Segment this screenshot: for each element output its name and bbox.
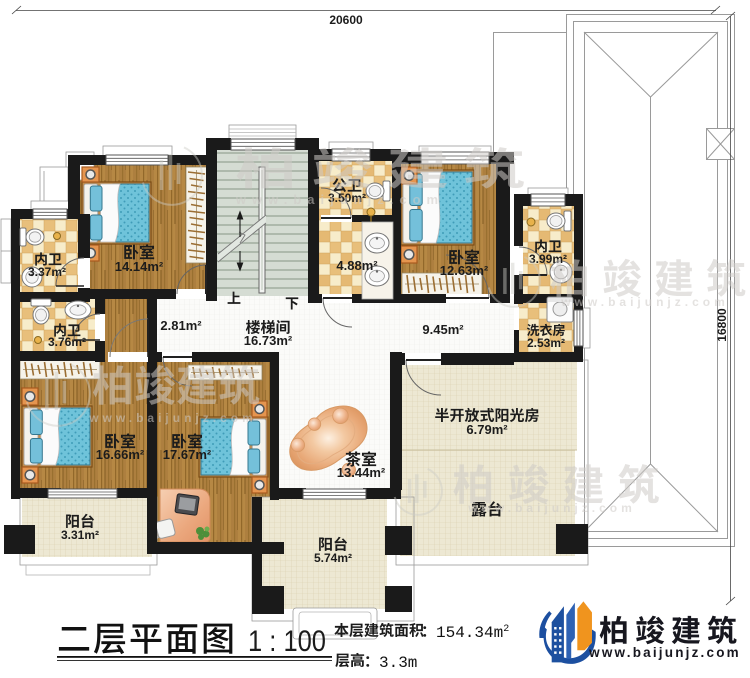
svg-text:www.baijunjz.com: www.baijunjz.com	[467, 501, 636, 515]
svg-text:12.63m²: 12.63m²	[440, 263, 489, 278]
svg-text:16.73m²: 16.73m²	[244, 333, 293, 348]
svg-text:5.74m²: 5.74m²	[314, 551, 352, 565]
svg-text:4.88m²: 4.88m²	[336, 258, 378, 273]
svg-text:：: ：	[421, 623, 436, 640]
svg-text:20600: 20600	[329, 13, 363, 27]
svg-text:2.81m²: 2.81m²	[160, 318, 202, 333]
svg-text:14.14m²: 14.14m²	[115, 259, 164, 274]
svg-text:9.45m²: 9.45m²	[422, 322, 464, 337]
svg-text:154.34m2: 154.34m2	[436, 624, 509, 642]
svg-text:www.baijunjz.com: www.baijunjz.com	[88, 411, 257, 425]
svg-text:2.53m²: 2.53m²	[527, 336, 565, 350]
svg-text:：: ：	[364, 653, 379, 670]
svg-text:www.baijunjz.com: www.baijunjz.com	[235, 192, 444, 207]
svg-text:www.baijunjz.com: www.baijunjz.com	[560, 295, 729, 309]
svg-text:3.76m²: 3.76m²	[48, 335, 86, 349]
svg-text:3.37m²: 3.37m²	[28, 265, 66, 279]
svg-text:1 : 100: 1 : 100	[248, 624, 326, 657]
svg-text:6.79m²: 6.79m²	[466, 422, 508, 437]
svg-text:17.67m²: 17.67m²	[163, 447, 212, 462]
svg-text:13.44m²: 13.44m²	[337, 465, 386, 480]
svg-text:16800: 16800	[715, 308, 729, 342]
svg-text:3.31m²: 3.31m²	[61, 528, 99, 542]
svg-text:16.66m²: 16.66m²	[96, 447, 145, 462]
svg-text:www.baijunjz.com: www.baijunjz.com	[588, 645, 741, 660]
svg-text:3.3m: 3.3m	[379, 654, 417, 672]
